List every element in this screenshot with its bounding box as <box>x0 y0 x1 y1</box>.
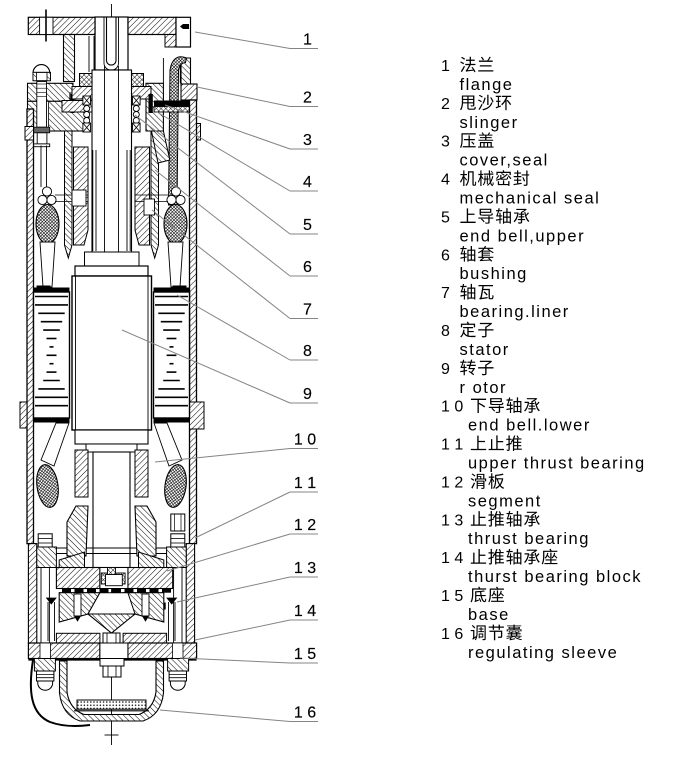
svg-text:cover,seal: cover,seal <box>460 152 549 170</box>
svg-text:regulating sleeve: regulating sleeve <box>468 644 618 662</box>
svg-text:2: 2 <box>303 90 312 107</box>
svg-text:1: 1 <box>303 32 312 49</box>
svg-text:bearing.liner: bearing.liner <box>460 303 570 321</box>
svg-text:5: 5 <box>441 209 450 226</box>
svg-text:1: 1 <box>441 58 450 75</box>
svg-text:7: 7 <box>441 285 450 302</box>
svg-text:bushing: bushing <box>460 265 528 283</box>
svg-text:6: 6 <box>441 247 450 264</box>
svg-text:3: 3 <box>441 134 450 151</box>
svg-text:1 6: 1 6 <box>294 705 316 722</box>
svg-text:1 0: 1 0 <box>294 432 316 449</box>
svg-text:mechanical seal: mechanical seal <box>460 190 601 208</box>
svg-text:thurst bearing block: thurst bearing block <box>468 568 642 586</box>
svg-text:1 2: 1 2 <box>441 475 463 492</box>
svg-text:1 4: 1 4 <box>294 603 316 620</box>
svg-text:4: 4 <box>303 174 312 191</box>
svg-text:7: 7 <box>303 302 312 319</box>
svg-text:6: 6 <box>303 259 312 276</box>
svg-text:thrust bearing: thrust bearing <box>468 530 590 548</box>
svg-text:stator: stator <box>460 341 510 359</box>
svg-text:8: 8 <box>303 343 312 360</box>
svg-text:base: base <box>468 606 510 624</box>
svg-text:1 4: 1 4 <box>441 550 463 567</box>
svg-text:1 0: 1 0 <box>441 399 463 416</box>
svg-text:segment: segment <box>468 492 542 510</box>
svg-text:9: 9 <box>441 361 450 378</box>
svg-text:r otor: r otor <box>460 379 508 397</box>
svg-text:1 1: 1 1 <box>294 475 316 492</box>
svg-text:9: 9 <box>303 386 312 403</box>
svg-text:1 3: 1 3 <box>441 512 463 529</box>
svg-text:8: 8 <box>441 323 450 340</box>
svg-text:5: 5 <box>303 217 312 234</box>
svg-text:1 3: 1 3 <box>294 560 316 577</box>
svg-text:end bell,upper: end bell,upper <box>460 227 586 245</box>
svg-text:1 6: 1 6 <box>441 626 463 643</box>
svg-text:upper thrust bearing: upper thrust bearing <box>468 455 646 473</box>
svg-text:4: 4 <box>441 172 450 189</box>
svg-text:slinger: slinger <box>460 114 519 132</box>
svg-text:1 5: 1 5 <box>294 646 316 663</box>
svg-text:end bell.lower: end bell.lower <box>468 417 591 435</box>
svg-text:1 1: 1 1 <box>441 437 463 454</box>
svg-text:1 2: 1 2 <box>294 517 316 534</box>
svg-text:flange: flange <box>460 76 514 94</box>
svg-text:1 5: 1 5 <box>441 588 463 605</box>
svg-text:2: 2 <box>441 96 450 113</box>
svg-text:3: 3 <box>303 132 312 149</box>
